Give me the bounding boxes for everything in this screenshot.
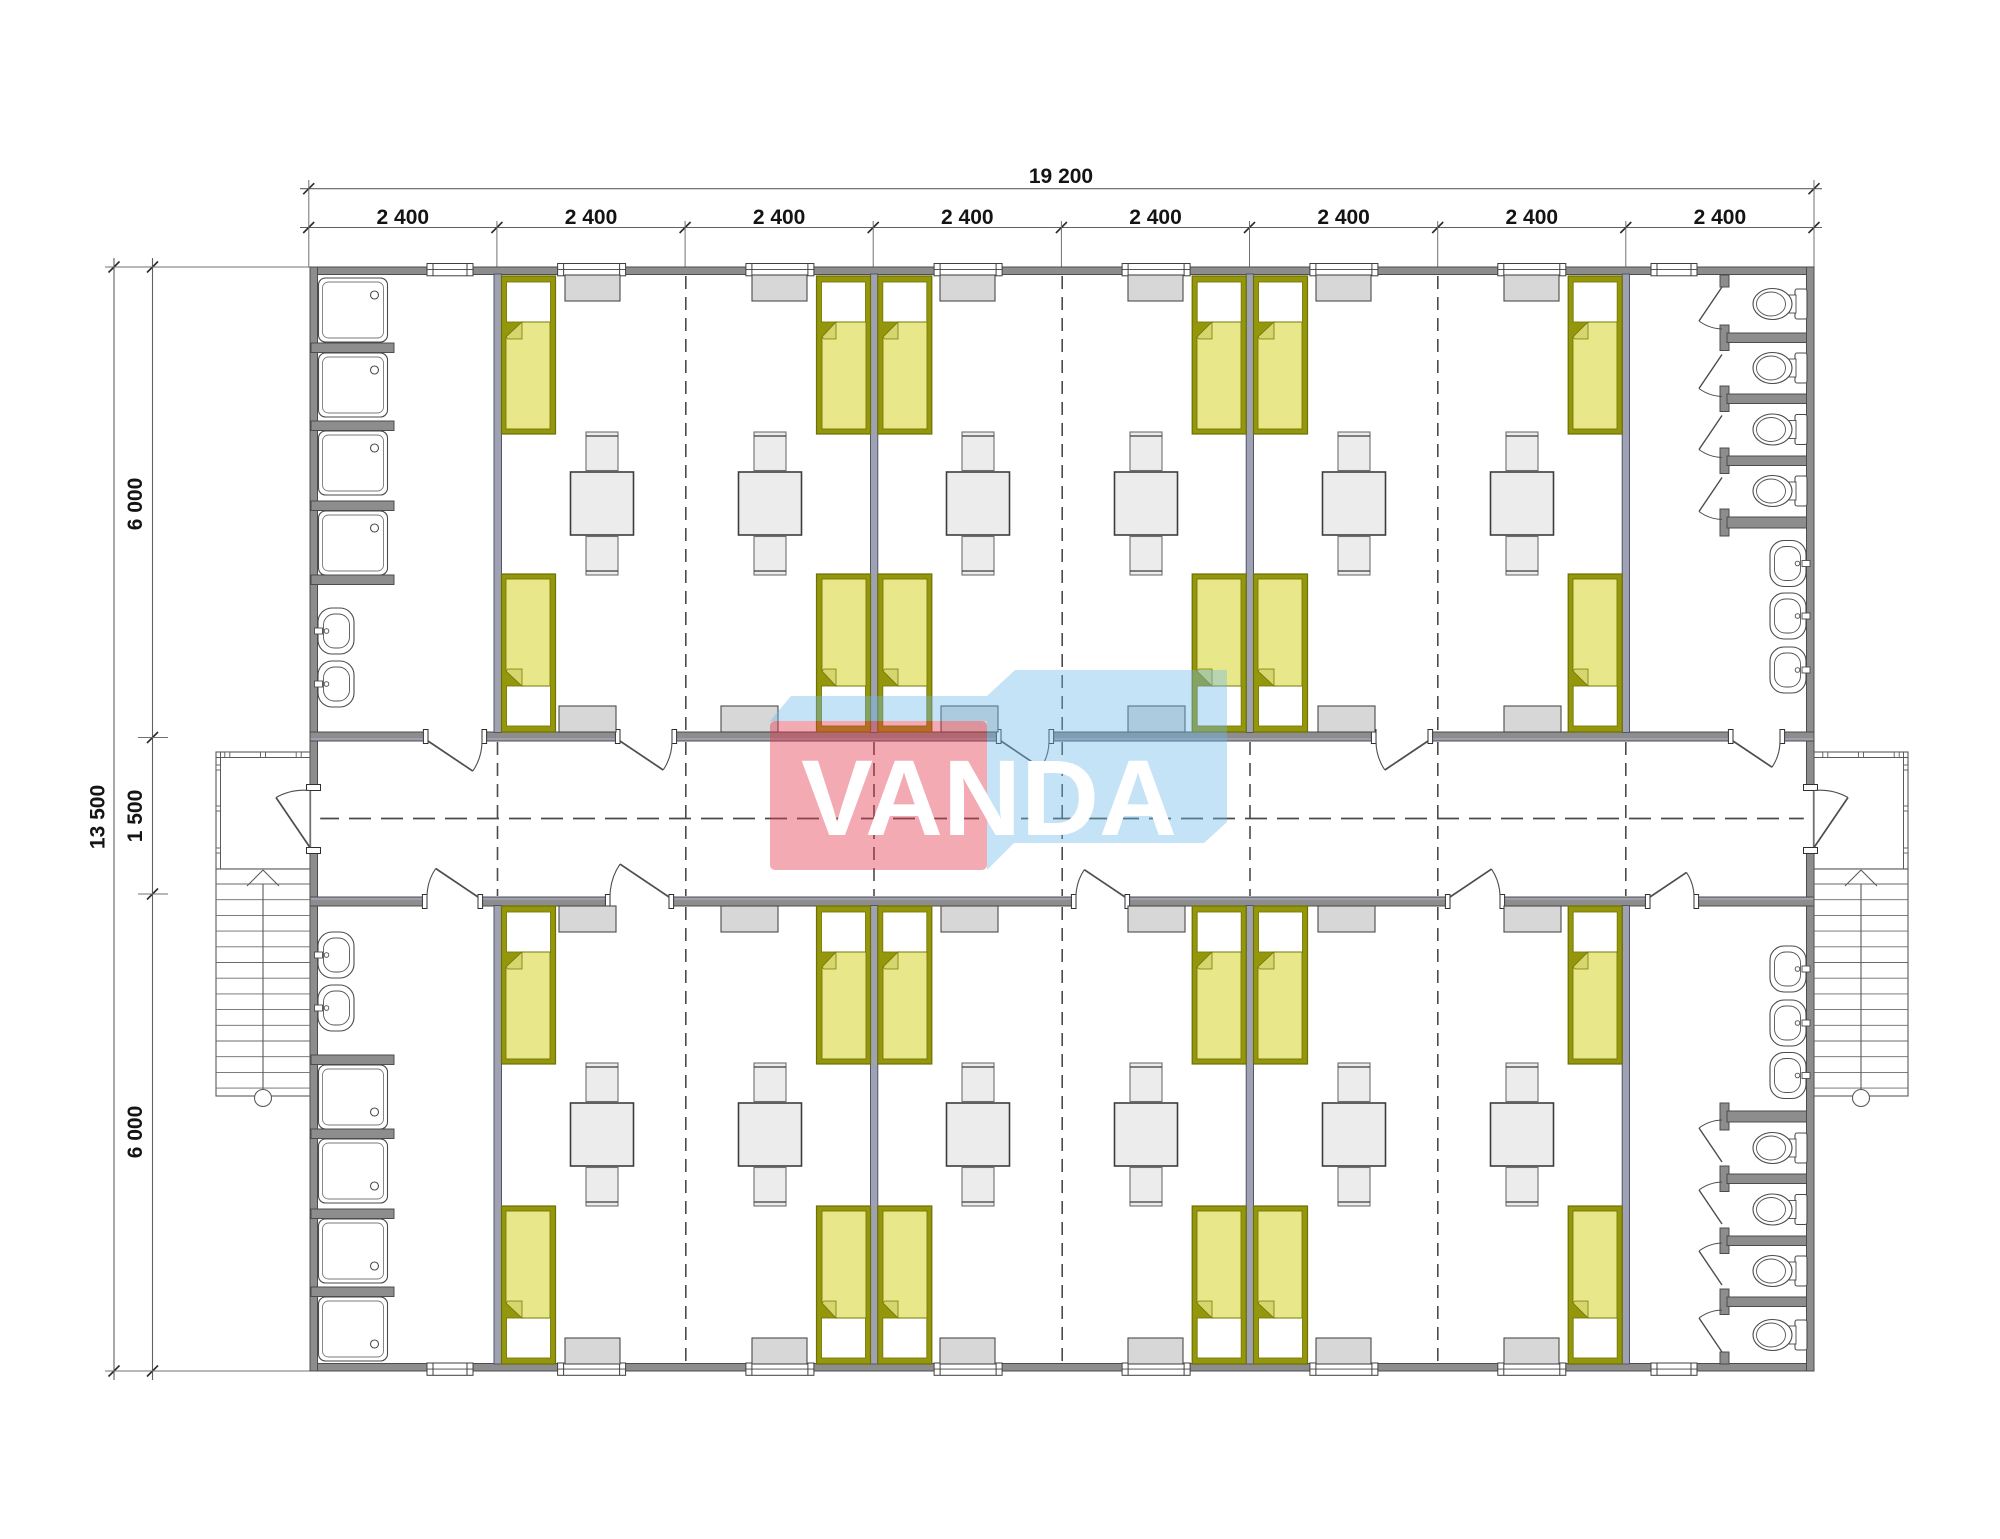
svg-text:2 400: 2 400 <box>941 206 994 229</box>
svg-text:2 400: 2 400 <box>1129 206 1182 229</box>
svg-text:2 400: 2 400 <box>377 206 430 229</box>
svg-text:1 500: 1 500 <box>124 790 147 843</box>
svg-text:2 400: 2 400 <box>1694 206 1747 229</box>
svg-text:2 400: 2 400 <box>1506 206 1559 229</box>
svg-text:2 400: 2 400 <box>1317 206 1370 229</box>
svg-text:6 000: 6 000 <box>124 1106 147 1159</box>
svg-text:19 200: 19 200 <box>1029 165 1093 188</box>
svg-text:2 400: 2 400 <box>753 206 806 229</box>
svg-text:VANDA: VANDA <box>801 737 1177 858</box>
svg-text:6 000: 6 000 <box>124 478 147 531</box>
svg-text:13 500: 13 500 <box>87 785 110 849</box>
svg-text:2 400: 2 400 <box>565 206 618 229</box>
